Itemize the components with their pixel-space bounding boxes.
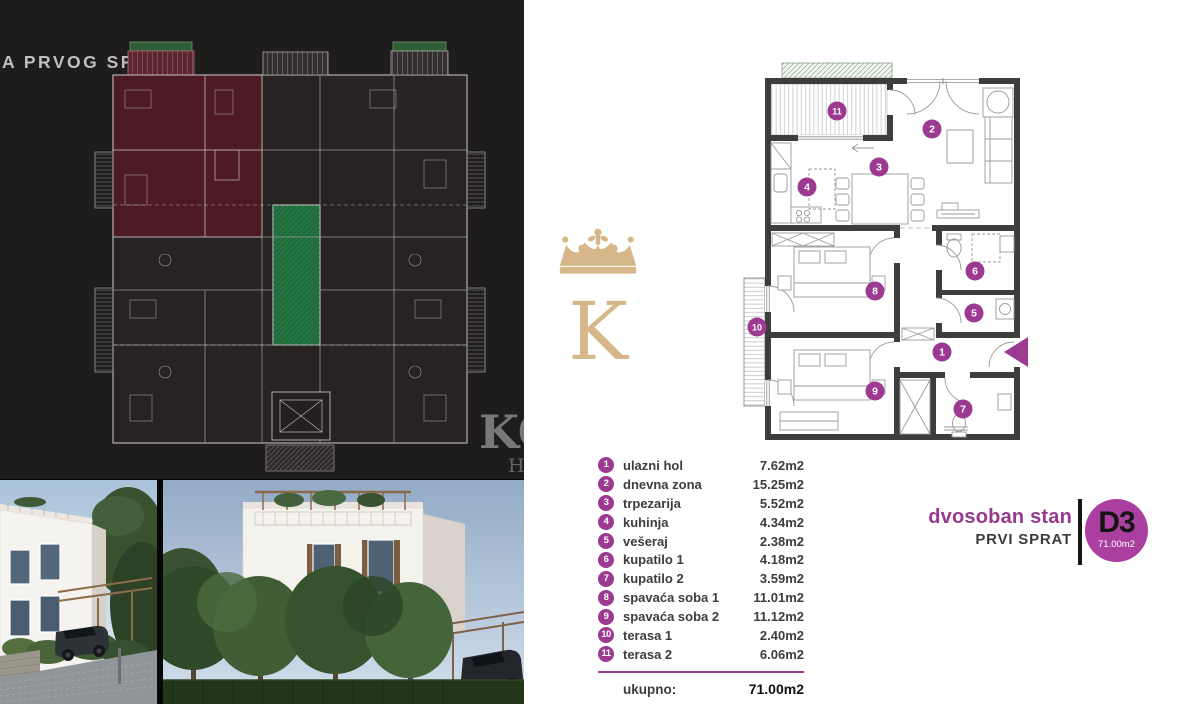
terrace-2-room bbox=[771, 63, 892, 135]
room-marker-1: 1 bbox=[933, 343, 952, 362]
legend-total-row: ukupno: 71.00m2 bbox=[598, 679, 804, 699]
courtyard bbox=[273, 205, 320, 345]
svg-text:8: 8 bbox=[872, 286, 878, 298]
stair-core bbox=[266, 392, 334, 471]
legend-room-area: 11.12m2 bbox=[753, 609, 804, 624]
svg-text:2: 2 bbox=[929, 124, 935, 136]
legend-room-label: ulazni hol bbox=[614, 458, 760, 473]
watermark-logo-text: KO bbox=[479, 405, 524, 459]
building-rendering-2 bbox=[163, 480, 524, 704]
room-marker-4: 4 bbox=[798, 178, 817, 197]
legend-row: 10 terasa 1 2.40m2 bbox=[598, 626, 804, 645]
legend-divider bbox=[598, 671, 804, 673]
svg-text:11: 11 bbox=[832, 106, 842, 116]
room-marker-2: 2 bbox=[923, 120, 942, 139]
hedge bbox=[163, 680, 524, 704]
legend-number-badge: 7 bbox=[598, 571, 614, 587]
legend-room-area: 6.06m2 bbox=[760, 647, 804, 662]
crown-icon bbox=[552, 225, 644, 275]
highlighted-unit bbox=[113, 75, 262, 237]
legend-room-area: 2.40m2 bbox=[760, 628, 804, 643]
building-photo-2 bbox=[163, 480, 524, 704]
svg-text:7: 7 bbox=[960, 404, 966, 416]
building-floor-plan: A PRVOG SPRATA bbox=[0, 0, 524, 479]
legend-number-badge: 4 bbox=[598, 514, 614, 530]
apartment-floor-plan: 1 2 3 4 5 6 7 bbox=[732, 50, 1032, 450]
room-marker-10: 10 bbox=[748, 318, 767, 337]
building-photo-1 bbox=[0, 480, 157, 704]
legend-number-badge: 10 bbox=[598, 627, 614, 643]
legend-row: 6 kupatilo 1 4.18m2 bbox=[598, 550, 804, 569]
legend-number-badge: 8 bbox=[598, 590, 614, 606]
legend-room-label: spavaća soba 2 bbox=[614, 609, 753, 624]
room-marker-6: 6 bbox=[966, 262, 985, 281]
legend-number-badge: 5 bbox=[598, 533, 614, 549]
legend-room-label: kupatilo 2 bbox=[614, 571, 760, 586]
legend-room-area: 4.18m2 bbox=[760, 552, 804, 567]
legend-room-label: terasa 2 bbox=[614, 647, 760, 662]
legend-number-badge: 1 bbox=[598, 457, 614, 473]
total-value: 71.00m2 bbox=[749, 681, 804, 697]
room-marker-9: 9 bbox=[866, 382, 885, 401]
apartment-type-label: dvosoban stan bbox=[880, 506, 1072, 529]
room-marker-3: 3 bbox=[870, 158, 889, 177]
title-divider-bar bbox=[1078, 499, 1082, 565]
legend-row: 2 dnevna zona 15.25m2 bbox=[598, 475, 804, 494]
unit-id-badge: D3 71.00m2 bbox=[1085, 499, 1148, 562]
legend-row: 1 ulazni hol 7.62m2 bbox=[598, 456, 804, 475]
legend-room-label: terasa 1 bbox=[614, 628, 760, 643]
bollard bbox=[118, 648, 121, 684]
watermark-sub-text: H bbox=[508, 455, 524, 477]
building-plan-panel: A PRVOG SPRATA bbox=[0, 0, 524, 479]
legend-room-area: 7.62m2 bbox=[760, 458, 804, 473]
legend-row: 8 spavaća soba 1 11.01m2 bbox=[598, 588, 804, 607]
legend-row: 7 kupatilo 2 3.59m2 bbox=[598, 569, 804, 588]
legend-room-area: 15.25m2 bbox=[753, 477, 804, 492]
legend-number-badge: 11 bbox=[598, 646, 614, 662]
room-marker-11: 11 bbox=[828, 102, 847, 121]
legend-room-area: 5.52m2 bbox=[760, 496, 804, 511]
legend-number-badge: 2 bbox=[598, 476, 614, 492]
legend-room-area: 3.59m2 bbox=[760, 571, 804, 586]
unit-area-text: 71.00m2 bbox=[1085, 539, 1148, 550]
terrace-1-room bbox=[744, 278, 765, 406]
legend-room-label: dnevna zona bbox=[614, 477, 753, 492]
room-marker-5: 5 bbox=[965, 304, 984, 323]
total-label: ukupno: bbox=[598, 682, 749, 697]
legend-room-label: kupatilo 1 bbox=[614, 552, 760, 567]
svg-text:9: 9 bbox=[872, 386, 878, 398]
room-marker-7: 7 bbox=[954, 400, 973, 419]
legend-number-badge: 9 bbox=[598, 609, 614, 625]
legend-number-badge: 6 bbox=[598, 552, 614, 568]
legend-room-label: trpezarija bbox=[614, 496, 760, 511]
floor-label: PRVI SPRAT bbox=[880, 531, 1072, 548]
legend-row: 11 terasa 2 6.06m2 bbox=[598, 645, 804, 664]
svg-text:5: 5 bbox=[971, 308, 977, 320]
brand-letter: K bbox=[552, 294, 644, 370]
room-marker-8: 8 bbox=[866, 282, 885, 301]
brochure-page: A PRVOG SPRATA bbox=[0, 0, 1200, 704]
legend-row: 9 spavaća soba 2 11.12m2 bbox=[598, 607, 804, 626]
legend-row: 3 trpezarija 5.52m2 bbox=[598, 494, 804, 513]
svg-text:6: 6 bbox=[972, 266, 978, 278]
room-legend: 1 ulazni hol 7.62m2 2 dnevna zona 15.25m… bbox=[598, 456, 804, 664]
legend-room-area: 4.34m2 bbox=[760, 515, 804, 530]
svg-text:3: 3 bbox=[876, 162, 882, 174]
unit-id-text: D3 bbox=[1085, 508, 1148, 538]
entrance-arrow bbox=[1004, 337, 1028, 367]
legend-room-label: kuhinja bbox=[614, 515, 760, 530]
legend-room-label: vešeraj bbox=[614, 534, 760, 549]
svg-text:4: 4 bbox=[804, 182, 810, 194]
legend-room-area: 2.38m2 bbox=[760, 534, 804, 549]
svg-text:10: 10 bbox=[752, 322, 762, 332]
legend-row: 4 kuhinja 4.34m2 bbox=[598, 513, 804, 532]
brand-logo: K bbox=[552, 225, 644, 375]
building-rendering-1 bbox=[0, 480, 157, 704]
legend-room-area: 11.01m2 bbox=[753, 590, 804, 605]
unit-title-block: dvosoban stan PRVI SPRAT bbox=[880, 506, 1072, 548]
legend-row: 5 vešeraj 2.38m2 bbox=[598, 532, 804, 551]
photo-strip bbox=[0, 479, 524, 704]
legend-room-label: spavaća soba 1 bbox=[614, 590, 753, 605]
legend-number-badge: 3 bbox=[598, 495, 614, 511]
svg-text:1: 1 bbox=[939, 347, 945, 359]
